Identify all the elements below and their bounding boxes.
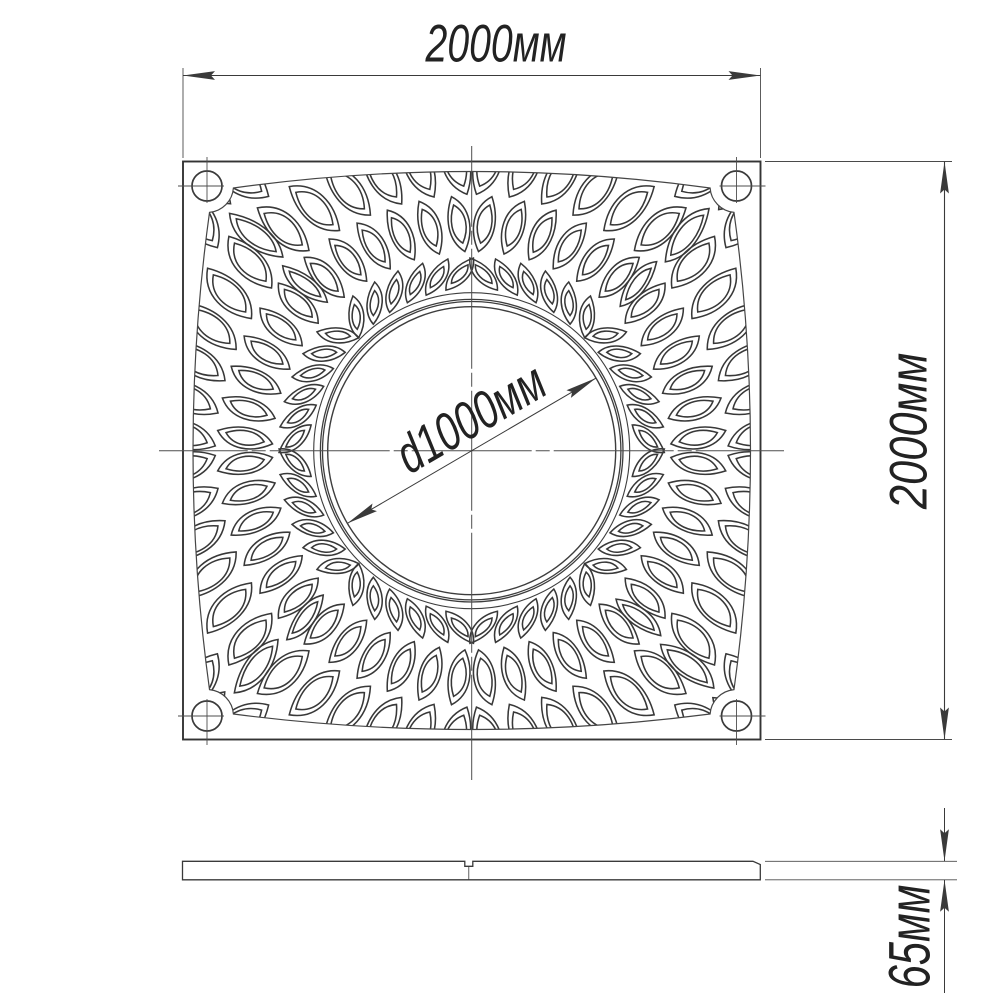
svg-text:2000мм: 2000мм [425,14,567,73]
svg-text:65мм: 65мм [877,885,942,989]
svg-text:2000мм: 2000мм [879,353,938,510]
svg-text:d1000мм: d1000мм [385,351,555,484]
